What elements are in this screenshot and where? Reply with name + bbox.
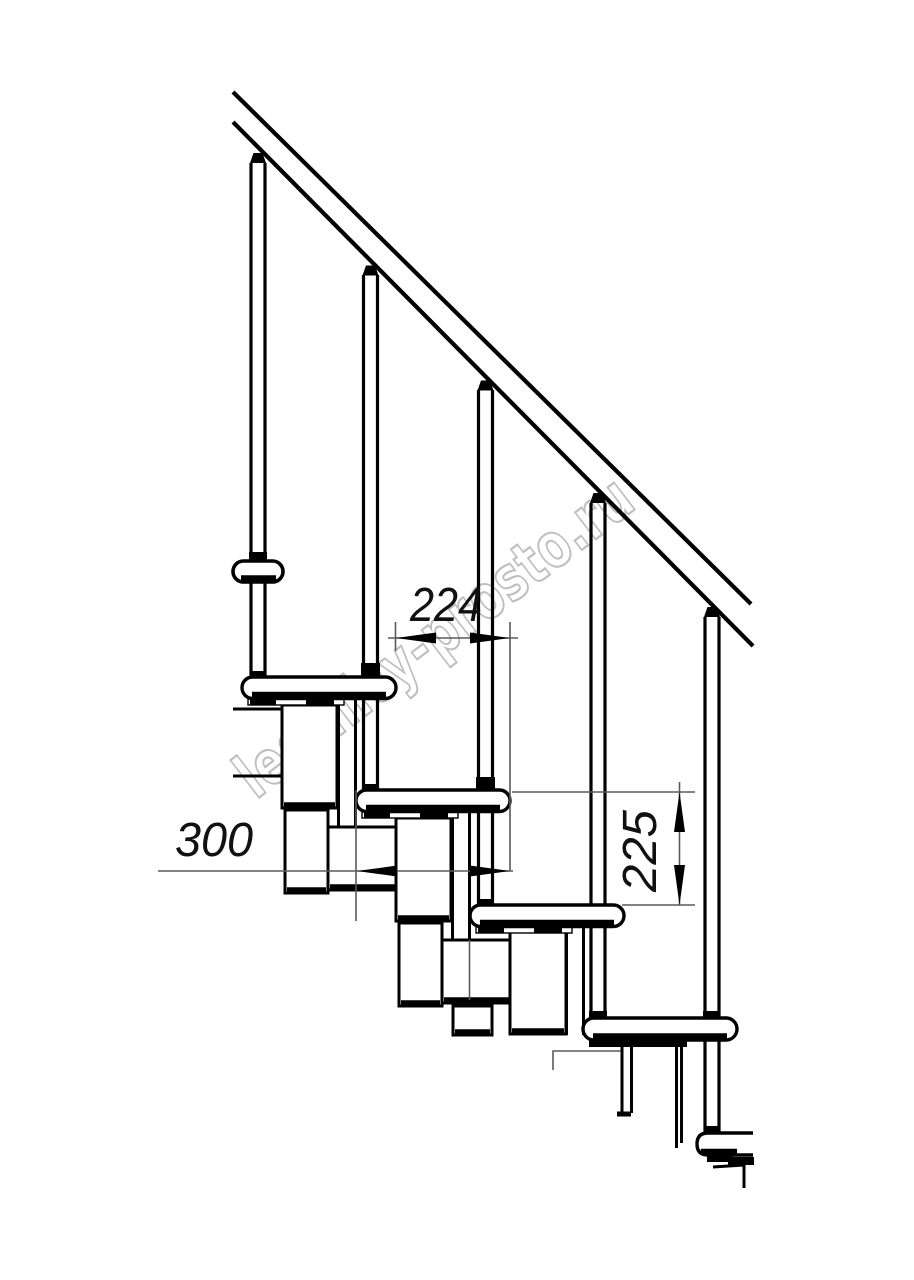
- module-box: [282, 705, 337, 808]
- baluster-clamp: [361, 663, 380, 676]
- module-box-lower: [285, 810, 328, 893]
- module-box-side: [442, 940, 517, 1003]
- module-box-side: [328, 827, 403, 890]
- module-box-lower: [399, 923, 442, 1006]
- drawing-canvas: lestnicy-prosto.ru: [0, 0, 914, 1280]
- baluster-foot: [704, 1126, 720, 1134]
- baluster-foot: [250, 671, 266, 678]
- dim-label-depth: 300: [175, 814, 253, 867]
- baluster-clamp: [249, 552, 267, 562]
- baluster-foot: [589, 1011, 607, 1019]
- baluster-clamp: [703, 1011, 720, 1019]
- dim-label-run: 224: [409, 579, 482, 632]
- baluster-foot: [477, 899, 494, 906]
- dim-label-rise: 225: [614, 810, 667, 893]
- baluster-foot: [362, 784, 379, 791]
- module-box: [396, 818, 451, 921]
- drawing-page: lestnicy-prosto.ru: [0, 0, 914, 1280]
- module-box: [510, 931, 566, 1034]
- baluster-clamp: [476, 777, 495, 790]
